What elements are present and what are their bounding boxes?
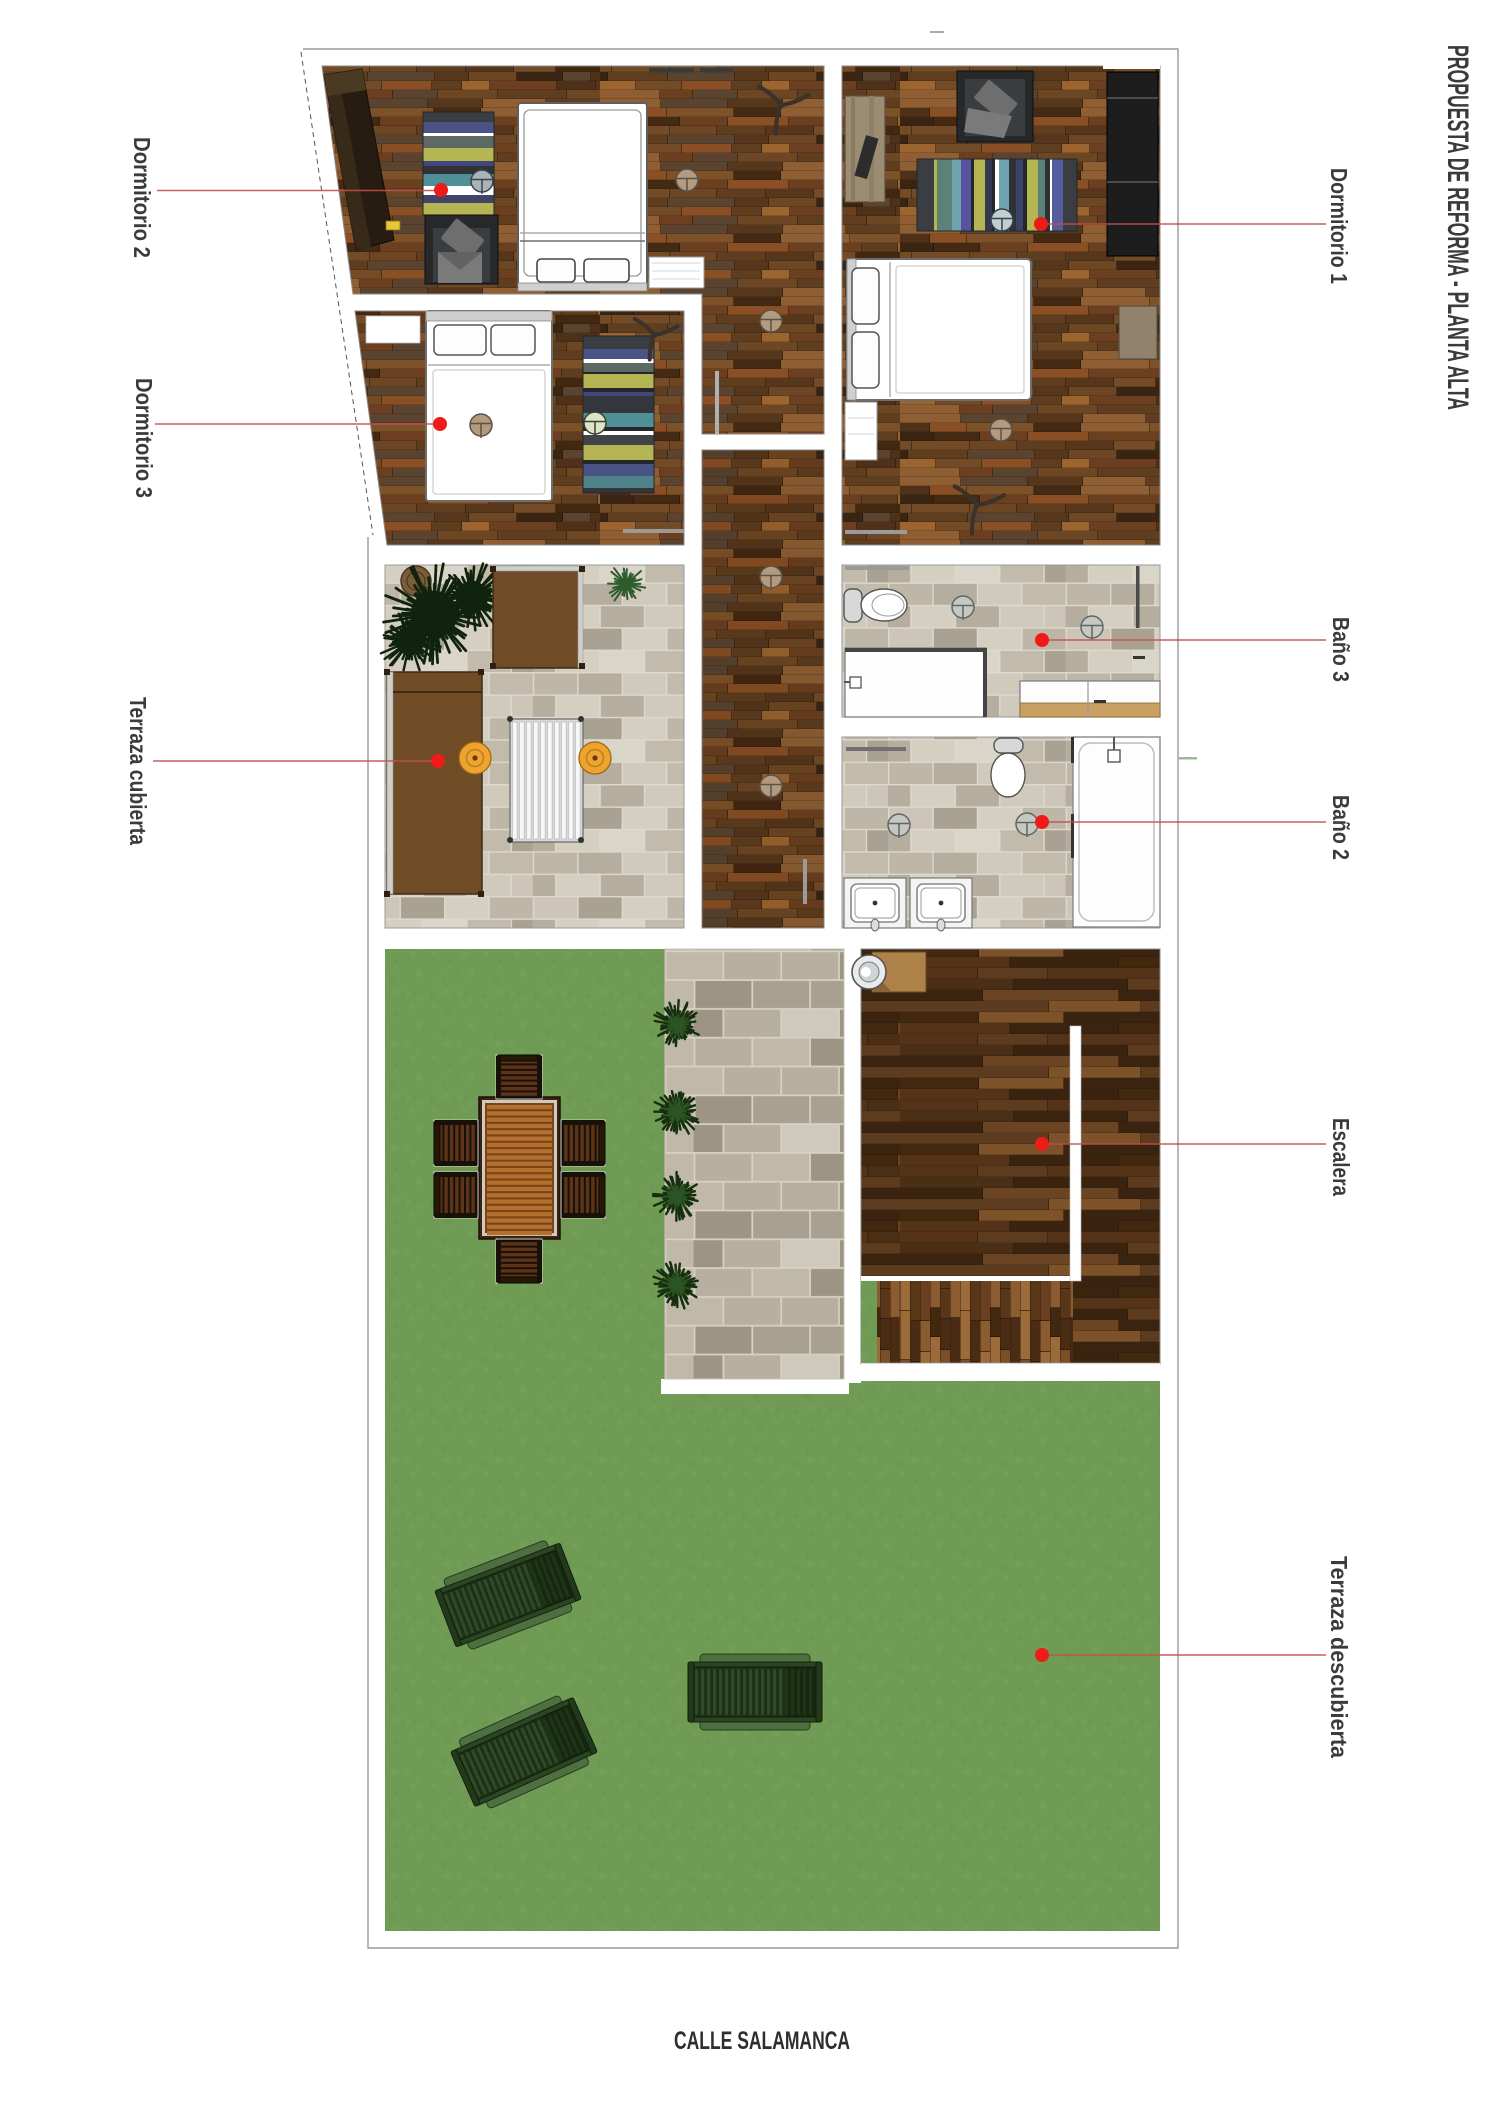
svg-text:Terraza descubierta: Terraza descubierta (1326, 1556, 1352, 1758)
svg-text:Terraza cubierta: Terraza cubierta (125, 697, 151, 845)
svg-text:Escalera: Escalera (1328, 1118, 1354, 1196)
svg-text:Baño 3: Baño 3 (1328, 617, 1354, 682)
svg-text:Dormitorio 3: Dormitorio 3 (131, 378, 157, 498)
svg-text:Dormitorio 1: Dormitorio 1 (1326, 168, 1352, 284)
svg-text:CALLE SALAMANCA: CALLE SALAMANCA (674, 2027, 850, 2055)
svg-text:PROPUESTA DE REFORMA - PLANTA: PROPUESTA DE REFORMA - PLANTA ALTA (1441, 45, 1474, 410)
svg-text:Dormitorio 2: Dormitorio 2 (129, 137, 155, 258)
svg-text:Baño 2: Baño 2 (1328, 795, 1354, 860)
